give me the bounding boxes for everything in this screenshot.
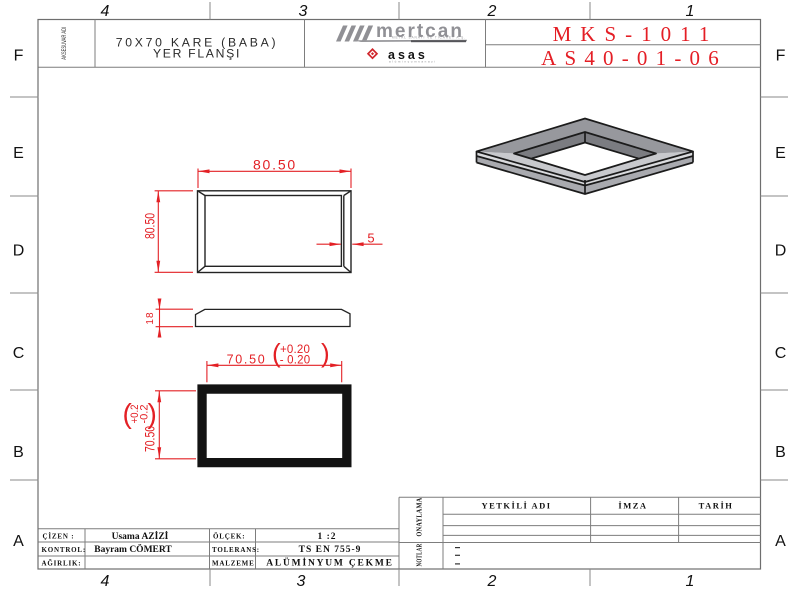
svg-text:80.50: 80.50 (253, 156, 297, 172)
svg-text:1 :2: 1 :2 (317, 532, 336, 542)
svg-text:AĞIRLIK:: AĞIRLIK: (42, 559, 82, 567)
svg-text:3: 3 (299, 3, 308, 20)
svg-text:ÖLÇEK:: ÖLÇEK: (213, 533, 245, 541)
svg-text:2: 2 (487, 573, 497, 590)
svg-text:F: F (14, 48, 24, 65)
svg-text:İMZA: İMZA (618, 501, 647, 511)
svg-text:TOLERANS:: TOLERANS: (212, 546, 260, 554)
svg-text:C: C (775, 345, 787, 362)
svg-text:Usama AZİZİ: Usama AZİZİ (112, 530, 169, 542)
svg-text:MALZEME: MALZEME (212, 559, 255, 567)
svg-text:A: A (13, 533, 24, 550)
svg-text:ÇİZEN :: ÇİZEN : (43, 533, 75, 541)
svg-text:B: B (775, 444, 786, 461)
svg-text:YER FLANŞI: YER FLANŞI (153, 47, 241, 61)
svg-text:C: C (13, 345, 25, 362)
svg-text:a l ü m i n y u m s a n a y: a l ü m i n y u m s a n a y i (389, 60, 435, 64)
svg-text:B: B (13, 444, 24, 461)
svg-text:2: 2 (487, 3, 497, 20)
svg-text:TS EN 755-9: TS EN 755-9 (299, 545, 362, 555)
svg-text:E: E (775, 145, 786, 162)
svg-text:): ) (148, 398, 157, 429)
svg-text:70.50: 70.50 (227, 352, 267, 366)
svg-text:E: E (13, 145, 24, 162)
svg-text:AS40-01-06: AS40-01-06 (541, 46, 727, 70)
svg-text:80.50: 80.50 (142, 213, 158, 239)
svg-text:4: 4 (101, 3, 110, 20)
svg-text:KONTROL:: KONTROL: (42, 546, 87, 554)
svg-text:18: 18 (145, 311, 156, 324)
svg-text:YETKİLİ ADI: YETKİLİ ADI (481, 501, 551, 511)
svg-text:NOTLAR: NOTLAR (416, 543, 424, 566)
svg-text:D: D (775, 243, 787, 260)
svg-text:A: A (775, 533, 786, 550)
svg-text:(: ( (123, 398, 133, 429)
svg-text:5: 5 (367, 231, 374, 246)
svg-text:1: 1 (686, 3, 695, 20)
svg-text:3: 3 (297, 573, 306, 590)
svg-text:1: 1 (686, 573, 695, 590)
svg-text:D: D (13, 243, 25, 260)
svg-text:TARİH: TARİH (699, 501, 734, 511)
svg-text:METAL SANAYİ VE TİCARET A.Ş.: METAL SANAYİ VE TİCARET A.Ş. (392, 35, 466, 40)
svg-text:): ) (321, 338, 330, 368)
svg-text:4: 4 (101, 573, 110, 590)
svg-text:F: F (776, 48, 786, 65)
svg-text:MKS-1011: MKS-1011 (553, 22, 719, 46)
svg-text:AKSESUVAR ADI: AKSESUVAR ADI (61, 27, 68, 60)
svg-text:70.50: 70.50 (142, 426, 158, 452)
svg-text:ONAYLAMA: ONAYLAMA (416, 498, 424, 537)
svg-text:- 0.20: - 0.20 (280, 354, 311, 366)
